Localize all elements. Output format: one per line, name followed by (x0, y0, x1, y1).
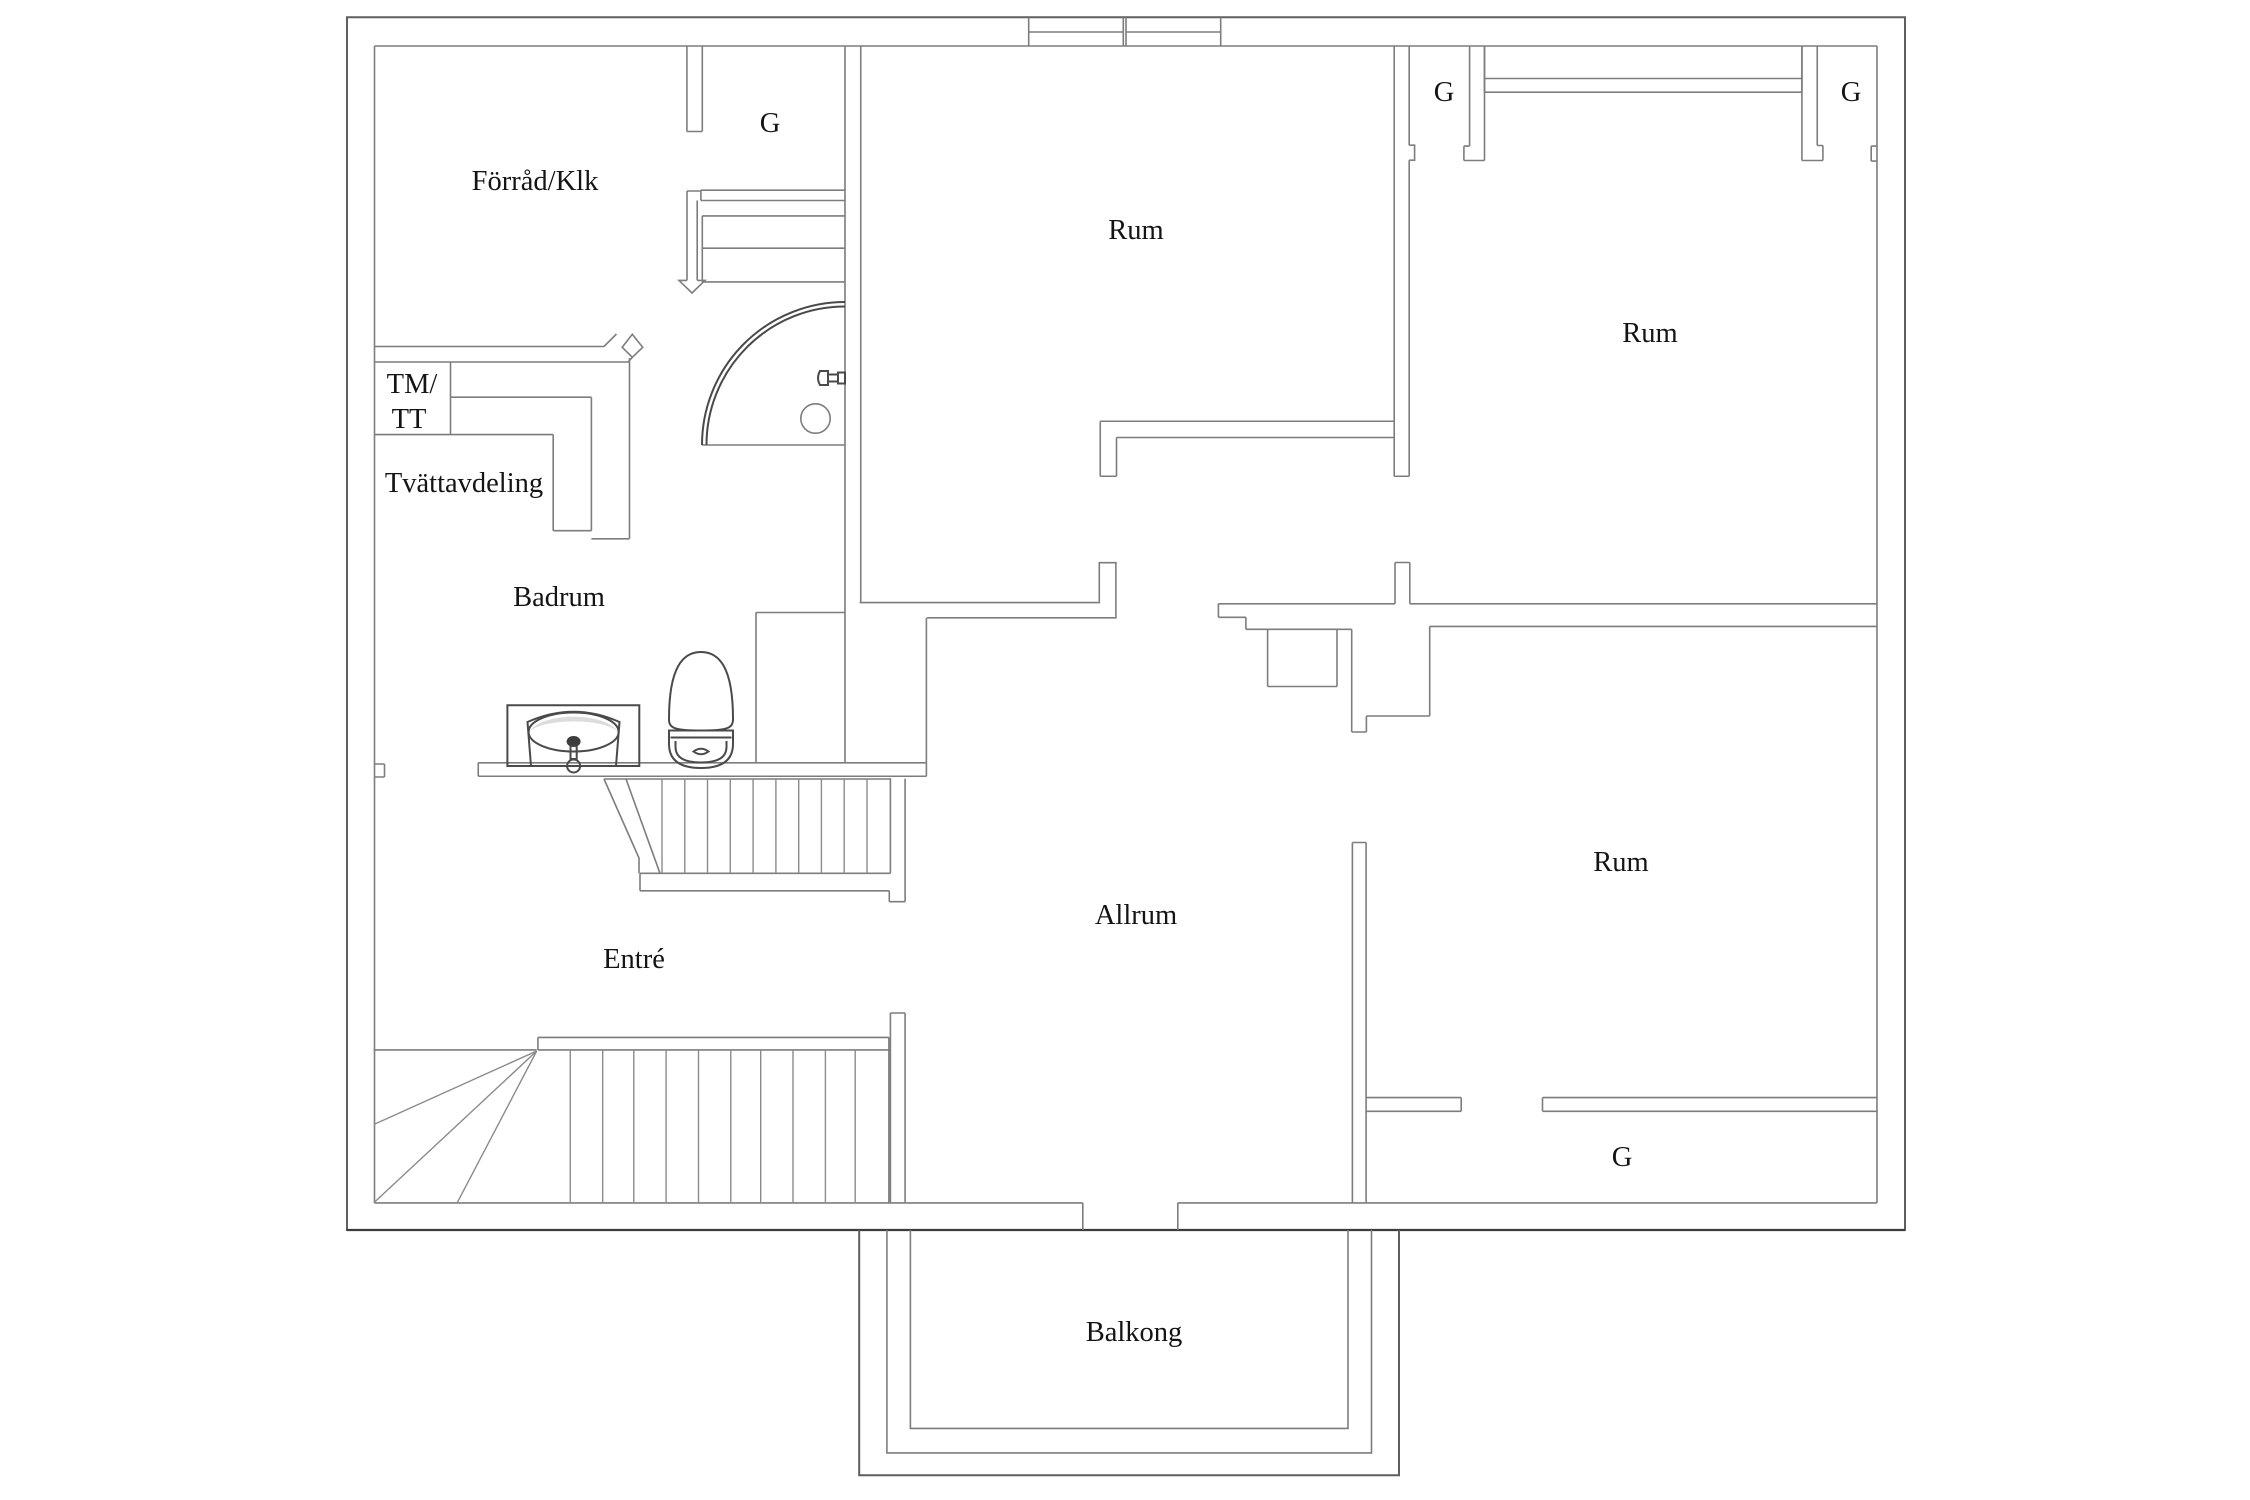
svg-text:Rum: Rum (1108, 215, 1163, 246)
svg-text:Rum: Rum (1593, 847, 1648, 878)
svg-text:Entré: Entré (603, 944, 665, 975)
svg-text:G: G (1841, 77, 1862, 108)
svg-text:G: G (1612, 1142, 1633, 1173)
svg-text:TT: TT (392, 404, 427, 435)
svg-text:Tvättavdeling: Tvättavdeling (385, 468, 543, 499)
svg-text:G: G (760, 108, 781, 139)
svg-text:Förråd/Klk: Förråd/Klk (472, 166, 599, 197)
svg-text:G: G (1434, 77, 1455, 108)
svg-text:Balkong: Balkong (1086, 1317, 1183, 1348)
svg-text:Badrum: Badrum (513, 582, 605, 613)
svg-text:Allrum: Allrum (1095, 900, 1177, 931)
svg-text:Rum: Rum (1622, 318, 1677, 349)
svg-text:TM/: TM/ (387, 369, 438, 400)
